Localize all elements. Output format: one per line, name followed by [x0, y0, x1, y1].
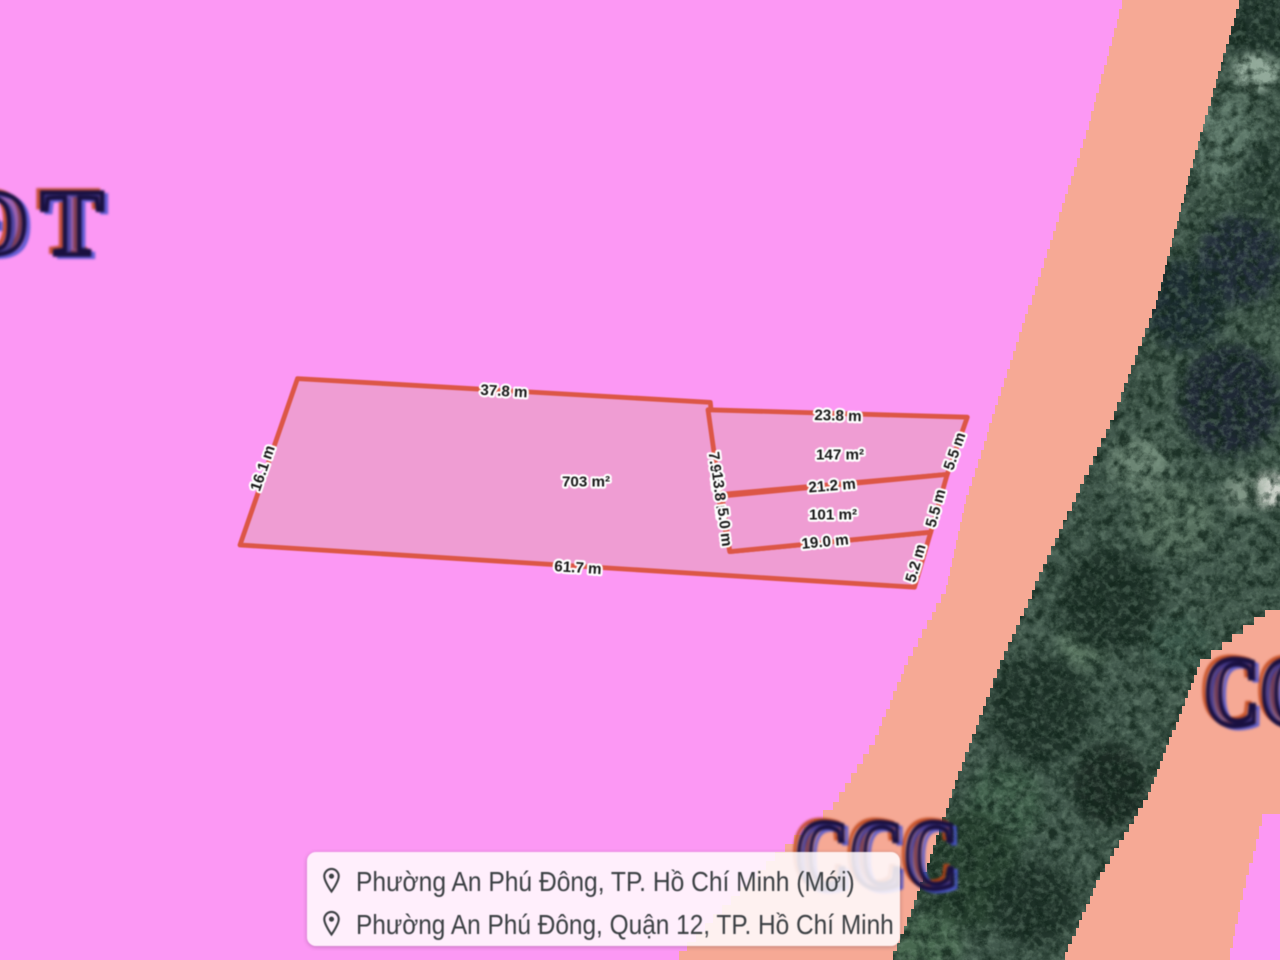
svg-text:703 m²: 703 m²	[562, 474, 610, 491]
svg-text:23.8 m: 23.8 m	[814, 407, 862, 425]
svg-text:37.8 m: 37.8 m	[480, 382, 528, 402]
svg-text:101 m²: 101 m²	[809, 507, 857, 524]
svg-text:61.7 m: 61.7 m	[554, 558, 602, 578]
svg-text:CC: CC	[1204, 636, 1280, 747]
svg-text:ĐT: ĐT	[0, 172, 117, 276]
svg-text:147 m²: 147 m²	[816, 447, 864, 464]
